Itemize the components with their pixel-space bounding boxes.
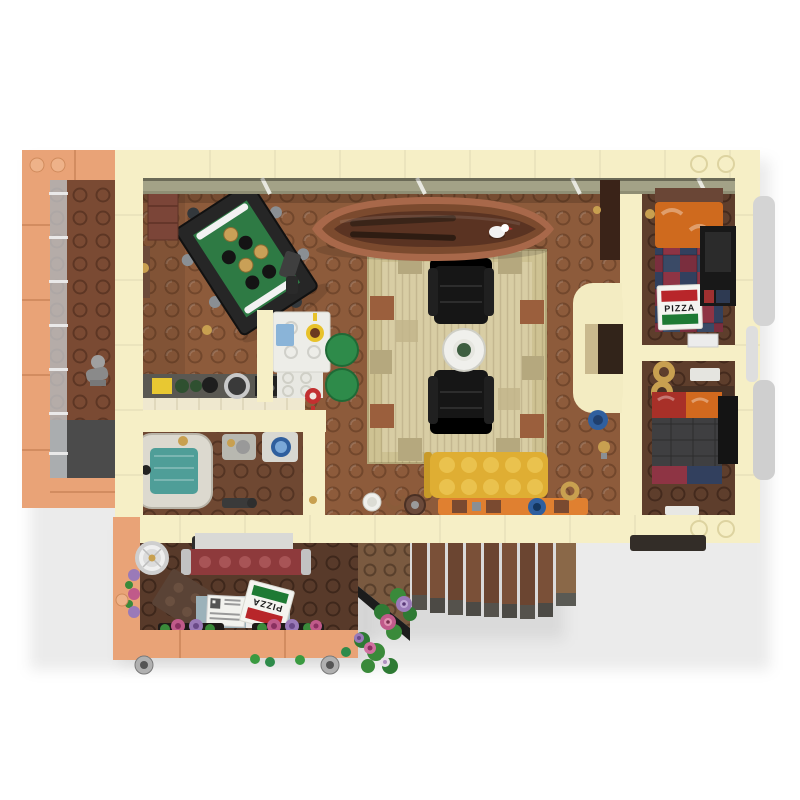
dark-ledge: [630, 535, 706, 551]
gold-vase: [202, 325, 212, 335]
bedroom-top-right: PIZZA: [645, 188, 736, 332]
stud: [691, 156, 707, 172]
balcony: [22, 150, 130, 508]
stud: [30, 158, 44, 172]
lego-apartment-floorplan-render: PIZZA: [0, 0, 800, 800]
white-wall-box: [688, 334, 718, 347]
bed-gray-blanket: [652, 418, 722, 466]
glass-railing: [49, 180, 68, 478]
wall-kitchen-stub: [257, 310, 273, 402]
green-bottle: [175, 379, 189, 393]
wall-bedrooms: [620, 178, 642, 515]
floorplan-scene: PIZZA: [0, 0, 800, 800]
white-sheet: [195, 533, 293, 549]
gold-wall-knob: [309, 496, 317, 504]
white-tray: [690, 368, 720, 381]
canoe-with-seagull: [312, 197, 554, 261]
round-silver-lamp: [135, 541, 169, 575]
gold-lamp: [598, 441, 610, 453]
dresser-tv: [700, 226, 736, 306]
kitchen-tile-floor: [133, 398, 305, 412]
fireplace-alcove: [573, 283, 623, 413]
wall-cabinet: [148, 188, 178, 240]
sink: [222, 434, 256, 460]
black-pot: [202, 377, 218, 393]
shop-wall-bottom: [113, 630, 358, 658]
blue-carton: [276, 324, 294, 346]
stud: [691, 521, 707, 537]
wall-bathroom-top: [130, 410, 326, 432]
armchair-top: [428, 258, 494, 324]
bed-footer: [652, 466, 687, 484]
shipping-label: [206, 595, 246, 627]
balcony-wall-left: [22, 150, 50, 508]
pizza-box-bedroom: PIZZA: [657, 284, 703, 330]
orange-bench: [438, 498, 588, 516]
dark-wardrobe: [718, 396, 738, 464]
stud: [51, 158, 65, 172]
green-stool: [326, 334, 358, 366]
white-tray2: [665, 506, 699, 515]
armchair-bottom: [428, 370, 494, 434]
wood-steps: [412, 543, 576, 619]
bed-headboard: [655, 188, 723, 202]
white-dining-table: [273, 312, 330, 372]
green-stool: [326, 369, 358, 401]
yellow-box: [152, 378, 172, 394]
gold-lamp-small: [645, 209, 655, 219]
gold-tap: [178, 436, 188, 446]
green-bottle: [190, 380, 202, 392]
wall-top: [115, 150, 760, 178]
stud: [116, 594, 128, 606]
balcony-wall-bottom: [22, 478, 115, 508]
wall-left-inner: [115, 150, 143, 543]
yellow-sofa: [424, 452, 548, 498]
washing-machine: [262, 432, 298, 462]
pizza-box-label: PIZZA: [664, 303, 695, 314]
maroon-bench: [181, 549, 311, 575]
stud: [718, 156, 734, 172]
wall-bathroom-right: [303, 410, 325, 543]
bathtub: [136, 434, 212, 508]
stud: [718, 521, 734, 537]
gold-door-handle: [593, 206, 601, 214]
round-table-with-plate: [443, 329, 485, 371]
window-strip: [143, 178, 735, 194]
bed-pillow-orange2: [686, 392, 722, 418]
